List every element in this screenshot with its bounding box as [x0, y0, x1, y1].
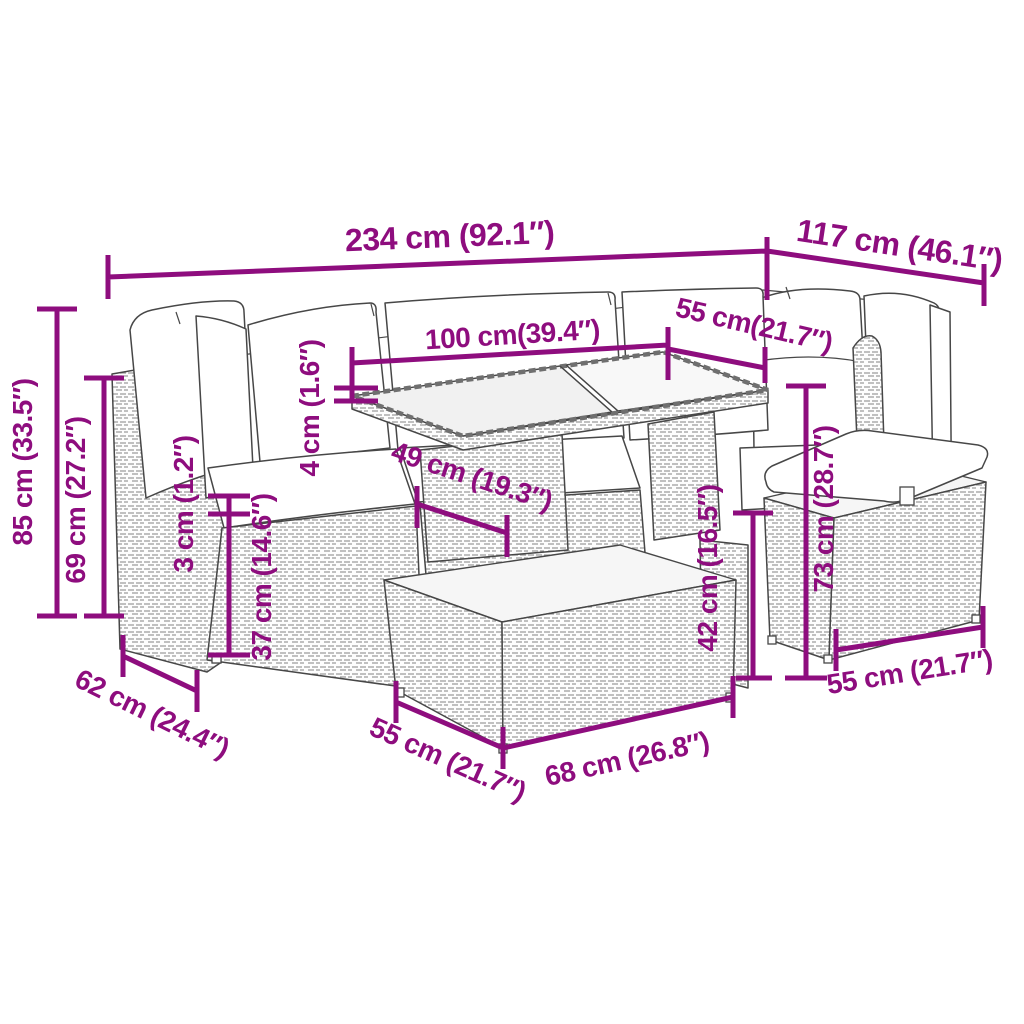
stool-foot — [824, 655, 832, 663]
dimension-diagram-canvas: 234 cm (92.1″) 117 cm (46.1″) 100 cm(39.… — [0, 0, 1024, 1024]
dimension-label: 234 cm (92.1″) — [344, 214, 555, 258]
dimension-label: 73 cm (28.7″) — [808, 425, 839, 592]
dimension-label: 4 cm (1.6″) — [294, 339, 325, 476]
dim-overall-width: 234 cm (92.1″) — [108, 214, 767, 300]
dimension-label: 42 cm (16.5″) — [692, 484, 723, 651]
dimension-label: 37 cm (14.6″) — [246, 493, 277, 660]
dimension-label: 62 cm (24.4″) — [70, 663, 234, 764]
dimension-label: 69 cm (27.2″) — [60, 416, 91, 583]
furniture-dimension-diagram: 234 cm (92.1″) 117 cm (46.1″) 100 cm(39.… — [0, 0, 1024, 1024]
stool-foot — [972, 615, 980, 623]
stool — [764, 430, 988, 663]
stool-handle — [900, 487, 914, 505]
dimension-label: 85 cm (33.5″) — [7, 378, 38, 545]
stool-foot — [768, 636, 776, 644]
dimension-label: 3 cm (1.2″) — [168, 435, 199, 572]
